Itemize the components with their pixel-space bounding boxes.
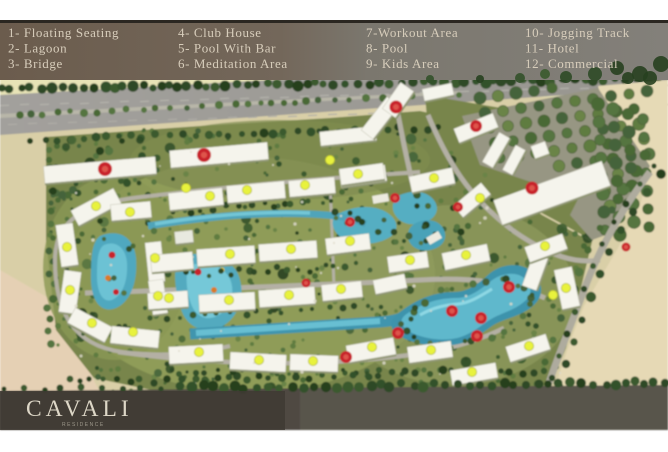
- svg-text:1- Floating Seating: 1- Floating Seating: [8, 25, 119, 40]
- svg-text:3- Bridge: 3- Bridge: [8, 56, 63, 71]
- svg-text:8- Pool: 8- Pool: [366, 41, 408, 56]
- svg-text:5- Pool With Bar: 5- Pool With Bar: [178, 41, 276, 56]
- svg-text:9- Kids Area: 9- Kids Area: [366, 56, 440, 71]
- svg-text:CAVALI: CAVALI: [26, 396, 133, 422]
- svg-text:11- Hotel: 11- Hotel: [525, 41, 579, 56]
- svg-text:12- Commercial: 12- Commercial: [525, 56, 618, 71]
- svg-text:4- Club House: 4- Club House: [178, 25, 262, 40]
- svg-text:RESIDENCE: RESIDENCE: [62, 422, 105, 428]
- svg-text:7-Workout Area: 7-Workout Area: [366, 25, 458, 40]
- svg-text:10- Jogging Track: 10- Jogging Track: [525, 25, 630, 40]
- svg-text:6- Meditation Area: 6- Meditation Area: [178, 56, 288, 71]
- svg-text:2- Lagoon: 2- Lagoon: [8, 41, 67, 56]
